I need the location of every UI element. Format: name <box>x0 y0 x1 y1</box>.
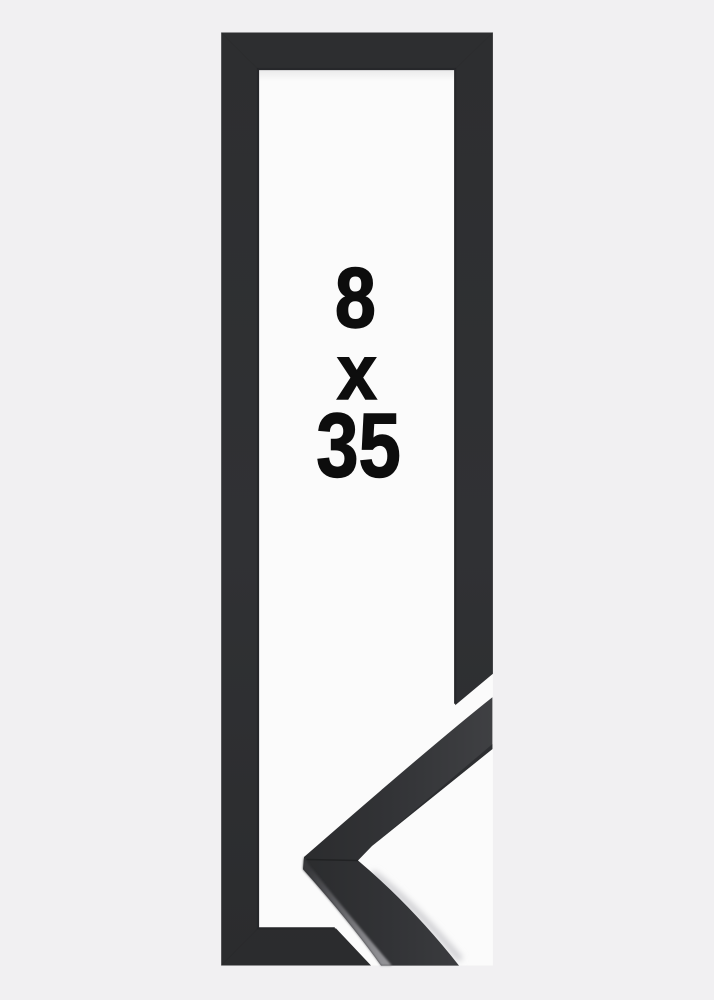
svg-text:35: 35 <box>316 396 401 497</box>
